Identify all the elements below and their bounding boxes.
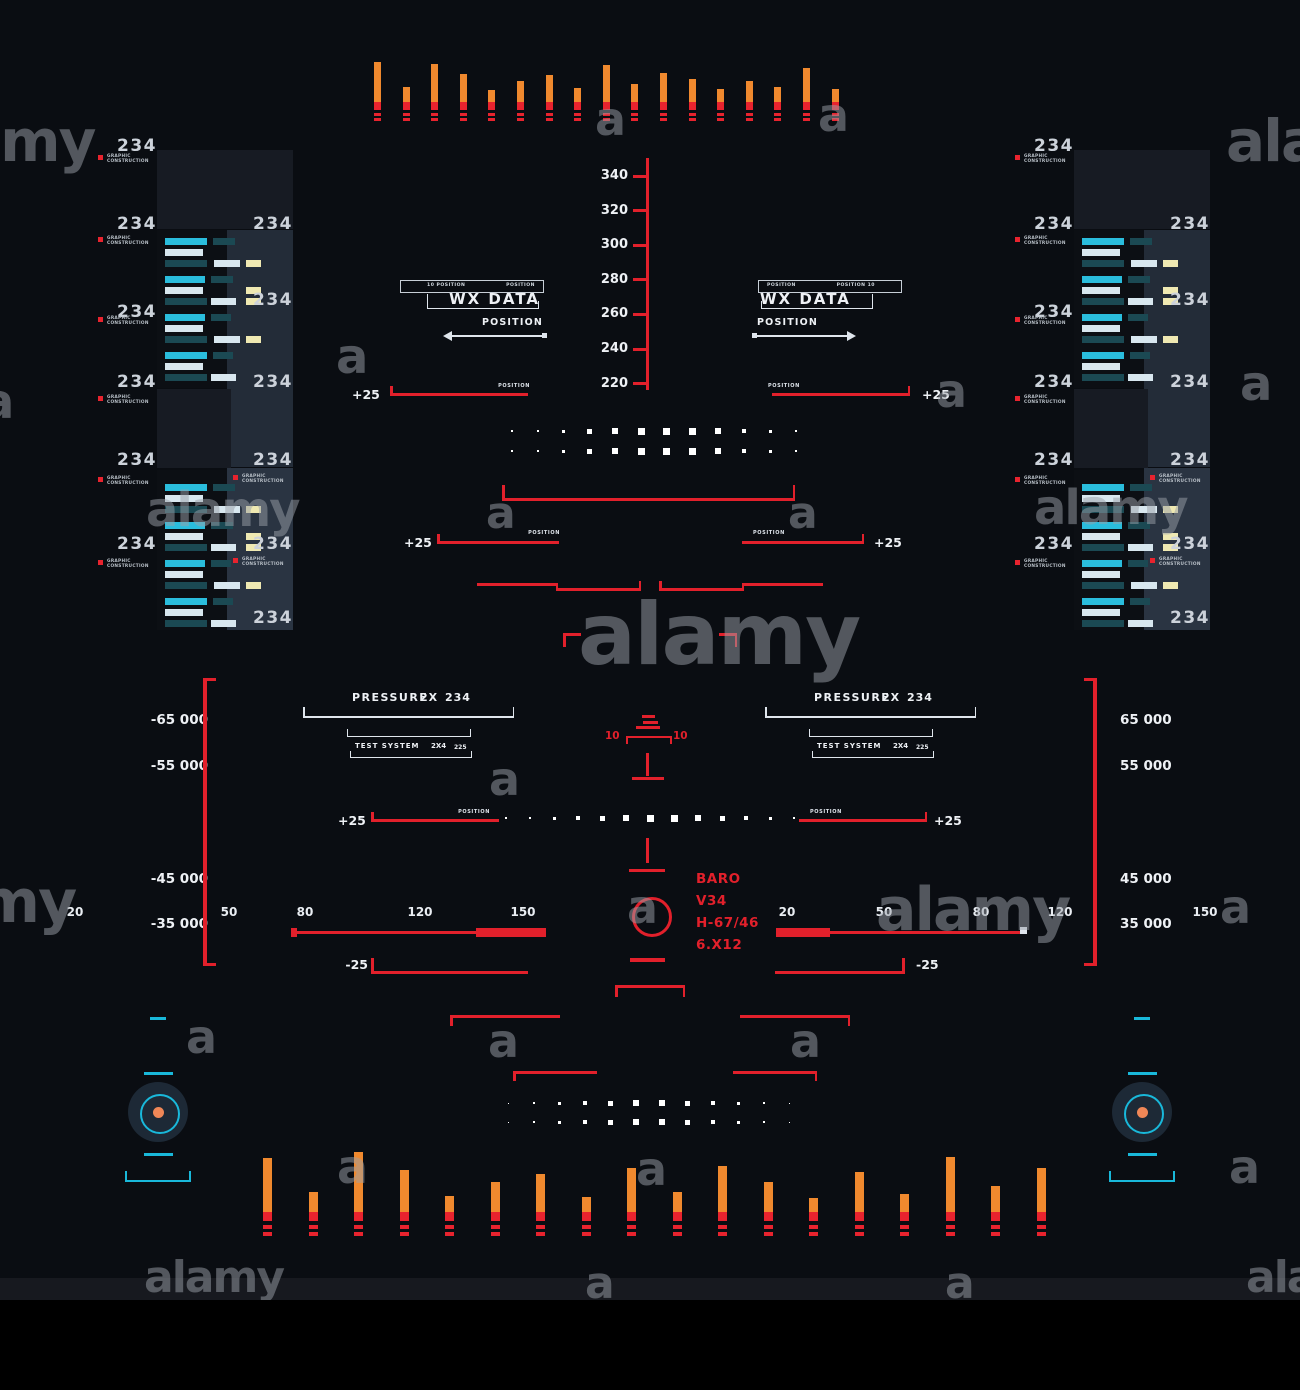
dot — [742, 429, 746, 433]
signal-bar-orange — [660, 73, 667, 102]
marker-square-icon — [98, 317, 103, 322]
deviation-value: +25 — [874, 535, 902, 550]
signal-bar-dash — [627, 1225, 636, 1229]
signal-bar-red — [900, 1212, 909, 1221]
watermark-text: alamy — [146, 486, 299, 534]
signal-bar-dash — [374, 113, 381, 116]
watermark-text: a — [486, 492, 514, 536]
pressure-label: PRESSURE — [352, 691, 428, 704]
data-bar — [1082, 609, 1120, 616]
signal-bar-red — [803, 102, 810, 110]
dot — [793, 817, 795, 819]
bracket-line — [303, 716, 514, 718]
dot — [647, 815, 654, 822]
data-bar — [1082, 276, 1122, 283]
deviation-line-tick — [908, 386, 911, 394]
arrow-right-icon — [847, 331, 856, 341]
signal-bar-dash — [991, 1225, 1000, 1229]
signal-bar-red — [445, 1212, 454, 1221]
dot — [633, 1100, 639, 1106]
data-bar — [213, 598, 233, 605]
position-arrow-line — [452, 335, 544, 337]
dot — [537, 430, 539, 432]
signal-bar-dash — [488, 113, 495, 116]
arrow-left-icon — [443, 331, 452, 341]
signal-bar-orange — [991, 1186, 1000, 1212]
bracket-end — [347, 729, 348, 737]
panel-value-234: 234 — [1028, 214, 1074, 234]
speed-scale-label: 80 — [289, 905, 321, 919]
deviation-value: +25 — [352, 387, 380, 402]
data-bar — [211, 276, 233, 283]
signal-bar-orange — [774, 87, 781, 102]
deviation-line — [390, 393, 528, 396]
signal-bar-red — [718, 1212, 727, 1221]
data-bar — [1163, 336, 1178, 343]
panel-value-234: 234 — [1164, 290, 1210, 310]
ladder-value-right: 10 — [673, 730, 688, 742]
dot — [659, 1119, 665, 1125]
signal-bar-dash — [309, 1225, 318, 1229]
gauge-bracket-end — [189, 1171, 191, 1182]
signal-bar-red — [536, 1212, 545, 1221]
signal-bar-red — [631, 102, 638, 110]
signal-bar-orange — [374, 62, 381, 102]
data-bar — [165, 298, 207, 305]
dot — [795, 450, 797, 452]
signal-bar-orange — [546, 75, 553, 102]
wx-underline — [761, 308, 873, 309]
bracket-end — [815, 1071, 818, 1081]
speed-line-thick — [476, 928, 546, 937]
data-bar — [1082, 352, 1124, 359]
data-bar — [214, 582, 240, 589]
watermark-text: alamy — [0, 872, 75, 932]
marker-square-icon — [1150, 558, 1155, 563]
signal-bar-dash — [574, 113, 581, 116]
gauge-dash — [1128, 1153, 1157, 1156]
signal-bar-dash — [1037, 1225, 1046, 1229]
signal-bar-red — [354, 1212, 363, 1221]
signal-bar-dash — [803, 113, 810, 116]
data-bar — [165, 560, 205, 567]
wx-underline — [427, 308, 539, 309]
panel-value-234: 234 — [1164, 608, 1210, 628]
dot — [715, 448, 721, 454]
ladder-vline — [646, 838, 649, 863]
data-bar — [1082, 582, 1124, 589]
signal-bar-dash — [689, 113, 696, 116]
data-bar — [165, 582, 207, 589]
marker-square-icon — [98, 477, 103, 482]
altitude-label: -45 000 — [140, 871, 208, 887]
bracket-line — [347, 736, 471, 737]
pressure-value: 234 — [907, 691, 933, 704]
ladder-vline — [646, 753, 649, 776]
baro-line-4: 6.X12 — [696, 937, 742, 953]
signal-bar-dash — [991, 1232, 1000, 1236]
signal-bar-dash — [403, 118, 410, 121]
signal-bar-dash — [900, 1225, 909, 1229]
data-bar — [214, 260, 240, 267]
dot — [663, 428, 670, 435]
dot — [583, 1120, 587, 1124]
watermark-text: a — [337, 1144, 366, 1190]
scale-line — [646, 158, 649, 390]
watermark-text: a — [1220, 884, 1249, 930]
data-bar — [1128, 560, 1148, 567]
signal-bar-dash — [400, 1232, 409, 1236]
data-bar — [165, 609, 203, 616]
pi-bracket-line — [615, 985, 685, 988]
data-bar — [1082, 249, 1120, 256]
signal-bar-dash — [627, 1232, 636, 1236]
pi-bracket-end — [615, 985, 618, 997]
panel-value-234: 234 — [1028, 372, 1074, 392]
wx-header-left-label: 10 POSITION — [427, 283, 465, 288]
dot — [638, 448, 645, 455]
data-bar — [1082, 336, 1124, 343]
dot — [583, 1101, 587, 1105]
signal-bar-red — [582, 1212, 591, 1221]
ladder-dash — [636, 726, 660, 729]
marker-square-icon — [1015, 477, 1020, 482]
dot — [505, 817, 507, 819]
dot — [789, 1103, 790, 1104]
data-bar — [211, 314, 231, 321]
signal-bar-orange — [718, 1166, 727, 1212]
watermark-text: a — [1240, 360, 1270, 408]
data-bar — [213, 238, 235, 245]
dot — [695, 815, 701, 821]
signal-bar-dash — [774, 113, 781, 116]
gauge-bracket-end — [1109, 1171, 1111, 1182]
dot — [633, 1119, 639, 1125]
watermark-text: a — [790, 1018, 819, 1064]
dot — [623, 815, 629, 821]
ladder-dash — [629, 869, 665, 872]
dot — [789, 1122, 790, 1123]
dot — [612, 428, 618, 434]
arrow-end-square — [752, 333, 757, 338]
data-bar — [211, 544, 236, 551]
dot — [671, 815, 678, 822]
dot — [529, 817, 531, 819]
signal-bar-orange — [488, 90, 495, 102]
dot — [638, 428, 645, 435]
bracket-end — [933, 751, 934, 758]
marker-square-icon — [1015, 396, 1020, 401]
scale-tick-label: 280 — [596, 272, 628, 287]
gauge-dash — [150, 1017, 166, 1020]
signal-bar-red — [627, 1212, 636, 1221]
signal-bar-red — [746, 102, 753, 110]
scale-tick-label: 220 — [596, 376, 628, 391]
scale-tick-label: 260 — [596, 306, 628, 321]
dot — [659, 1100, 665, 1106]
dot — [742, 449, 746, 453]
signal-bar-dash — [809, 1225, 818, 1229]
position-tiny-label: POSITION — [525, 530, 560, 536]
signal-bar-dash — [764, 1232, 773, 1236]
data-bar — [1163, 582, 1178, 589]
data-bar — [165, 325, 203, 332]
speed-scale-label: 150 — [1189, 905, 1221, 919]
altitude-label: -65 000 — [140, 712, 208, 728]
bracket-end — [809, 729, 810, 737]
bracket-tick — [203, 963, 216, 966]
scale-tick — [633, 175, 646, 178]
pressure-label: PRESSURE — [814, 691, 890, 704]
signal-bar-orange — [809, 1198, 818, 1212]
signal-bar-orange — [1037, 1168, 1046, 1212]
speed-scale-label: 120 — [404, 905, 436, 919]
data-bar — [1082, 238, 1124, 245]
altitude-label: 45 000 — [1120, 871, 1188, 887]
data-bar — [1082, 260, 1124, 267]
gauge-bracket-end — [1173, 1171, 1175, 1182]
data-bar — [1082, 287, 1120, 294]
data-bar — [165, 276, 205, 283]
watermark-text: a — [636, 1146, 665, 1192]
baro-line-2: V34 — [696, 893, 727, 909]
signal-bar-orange — [403, 87, 410, 102]
marker-square-icon — [98, 560, 103, 565]
watermark-text: a — [186, 1014, 215, 1060]
data-bar — [1082, 298, 1124, 305]
dot — [711, 1101, 715, 1105]
construction-label: GRAPHIC CONSTRUCTION — [107, 154, 145, 164]
pressure-value: 234 — [445, 691, 471, 704]
signal-bar-orange — [689, 79, 696, 102]
signal-bar-dash — [309, 1232, 318, 1236]
construction-label: GRAPHIC CONSTRUCTION — [242, 557, 280, 567]
dot — [562, 450, 565, 453]
position-tiny-label: POSITION — [753, 530, 788, 536]
signal-bar-red — [517, 102, 524, 110]
signal-bar-dash — [263, 1232, 272, 1236]
signal-bar-dash — [403, 113, 410, 116]
signal-bar-red — [991, 1212, 1000, 1221]
panel-value-234: 234 — [111, 136, 157, 156]
bracket-end — [470, 729, 471, 737]
scale-tick — [633, 278, 646, 281]
signal-bar-orange — [574, 88, 581, 102]
data-bar — [1082, 374, 1124, 381]
altitude-label: -35 000 — [140, 916, 208, 932]
watermark-text: alamy — [578, 592, 859, 678]
construction-label: GRAPHIC CONSTRUCTION — [1159, 557, 1197, 567]
signal-bar-dash — [855, 1232, 864, 1236]
dot — [763, 1102, 765, 1104]
deviation-value: +25 — [338, 813, 366, 828]
gauge-dash — [144, 1153, 173, 1156]
signal-bar-dash — [673, 1225, 682, 1229]
wx-header-right-label: POSITION 10 — [837, 283, 875, 288]
deviation-value: +25 — [404, 535, 432, 550]
panel-value-234: 234 — [1164, 372, 1210, 392]
watermark-text: a — [788, 492, 816, 536]
data-bar — [1128, 544, 1153, 551]
gauge-dash — [1134, 1017, 1150, 1020]
data-bar — [165, 260, 207, 267]
baro-line-3: H-67/46 — [696, 915, 759, 931]
altitude-label: -55 000 — [140, 758, 208, 774]
signal-bar-red — [460, 102, 467, 110]
signal-bar-dash — [536, 1225, 545, 1229]
signal-bar-orange — [855, 1172, 864, 1212]
dot — [562, 430, 565, 433]
altitude-label: 35 000 — [1120, 916, 1188, 932]
data-bar — [165, 544, 207, 551]
dot — [587, 429, 592, 434]
scale-tick-label: 300 — [596, 237, 628, 252]
signal-bar-dash — [374, 118, 381, 121]
dot — [600, 816, 605, 821]
dot — [533, 1121, 535, 1123]
signal-bar-dash — [900, 1232, 909, 1236]
scale-tick — [633, 382, 646, 385]
signal-bar-red — [488, 102, 495, 110]
data-bar — [211, 298, 236, 305]
position-tiny-label: POSITION — [810, 809, 845, 815]
data-bar — [1128, 298, 1153, 305]
signal-bar-orange — [431, 64, 438, 102]
dot — [508, 1103, 509, 1104]
dot — [685, 1120, 690, 1125]
scale-tick-label: 320 — [596, 203, 628, 218]
deviation-value: +25 — [934, 813, 962, 828]
dot — [737, 1102, 740, 1105]
signal-bar-orange — [631, 84, 638, 102]
data-bar — [1082, 620, 1124, 627]
position-arrow-line — [755, 335, 847, 337]
gauge-bracket-line — [125, 1180, 191, 1182]
dot — [558, 1102, 561, 1105]
gauge-dash — [1128, 1072, 1157, 1075]
panel-value-234: 234 — [1028, 450, 1074, 470]
speed-scale-label: 20 — [771, 905, 803, 919]
signal-bar-dash — [673, 1232, 682, 1236]
signal-bar-dash — [718, 1225, 727, 1229]
position-tiny-label: POSITION — [470, 383, 530, 389]
signal-bar-dash — [746, 113, 753, 116]
signal-bar-dash — [574, 118, 581, 121]
data-bar — [1082, 363, 1120, 370]
construction-label: GRAPHIC CONSTRUCTION — [107, 316, 145, 326]
dot — [508, 1122, 509, 1123]
signal-bar-orange — [946, 1157, 955, 1212]
speed-line-cap — [291, 928, 297, 937]
panel-value-234: 234 — [1164, 534, 1210, 554]
signal-bar-dash — [546, 113, 553, 116]
dot — [511, 450, 513, 452]
data-bar — [1130, 598, 1150, 605]
signal-bar-red — [809, 1212, 818, 1221]
panel-value-234: 234 — [1164, 214, 1210, 234]
signal-bar-red — [673, 1212, 682, 1221]
signal-bar-dash — [774, 118, 781, 121]
bracket-end — [350, 751, 351, 758]
data-bar — [1128, 276, 1150, 283]
panel-value-234: 234 — [247, 450, 293, 470]
wx-underline-riser — [538, 301, 539, 309]
speed-scale-label: 50 — [213, 905, 245, 919]
dot — [769, 817, 772, 820]
signal-bar-orange — [491, 1182, 500, 1212]
dot — [737, 1121, 740, 1124]
data-bar — [165, 620, 207, 627]
signal-bar-dash — [354, 1232, 363, 1236]
panel-value-234: 234 — [1028, 534, 1074, 554]
test-system-mult: 2X4 — [893, 742, 908, 750]
signal-bar-orange — [536, 1174, 545, 1212]
data-bar — [1128, 374, 1153, 381]
panel-value-234: 234 — [111, 214, 157, 234]
signal-bar-dash — [460, 118, 467, 121]
dot — [533, 1102, 535, 1104]
gauge-bracket-end — [125, 1171, 127, 1182]
construction-label: GRAPHIC CONSTRUCTION — [107, 476, 145, 486]
marker-square-icon — [1015, 237, 1020, 242]
dot — [558, 1121, 561, 1124]
deviation-line-tick — [862, 534, 865, 542]
wx-underline-riser — [872, 294, 873, 309]
data-bar — [1131, 582, 1157, 589]
data-bar — [246, 336, 261, 343]
data-bar — [165, 571, 203, 578]
ladder-bar-end — [670, 736, 672, 744]
data-bar — [1082, 598, 1124, 605]
marker-square-icon — [233, 558, 238, 563]
signal-bar-red — [574, 102, 581, 110]
step-vert — [902, 958, 905, 974]
watermark-text: alamy — [1246, 1256, 1300, 1300]
panel-value-234: 234 — [247, 372, 293, 392]
deviation-line-tick — [390, 386, 393, 394]
data-bar — [1082, 560, 1122, 567]
signal-bar-dash — [717, 118, 724, 121]
speed-scale-label: 150 — [507, 905, 539, 919]
dot — [689, 448, 696, 455]
corner-line — [563, 633, 566, 647]
data-bar — [1128, 620, 1153, 627]
watermark-text: a — [627, 884, 656, 930]
signal-bar-dash — [445, 1225, 454, 1229]
dot — [711, 1120, 715, 1124]
gauge-dash — [144, 1072, 173, 1075]
bracket-tick — [203, 678, 216, 681]
data-bar — [1131, 336, 1157, 343]
wx-position-label: POSITION — [440, 317, 543, 328]
signal-bar-dash — [488, 118, 495, 121]
signal-bar-red — [403, 102, 410, 110]
signal-bar-dash — [536, 1232, 545, 1236]
data-bar — [165, 238, 207, 245]
construction-label: GRAPHIC CONSTRUCTION — [1024, 154, 1062, 164]
scale-tick — [633, 244, 646, 247]
bracket-end — [765, 707, 767, 718]
marker-square-icon — [98, 396, 103, 401]
signal-bar-red — [946, 1212, 955, 1221]
data-bar — [211, 560, 231, 567]
scale-tick — [633, 313, 646, 316]
dot — [715, 428, 721, 434]
position-tiny-label: POSITION — [768, 383, 828, 389]
signal-bar-red — [431, 102, 438, 110]
dot — [608, 1120, 613, 1125]
watermark-text: a — [488, 1018, 517, 1064]
